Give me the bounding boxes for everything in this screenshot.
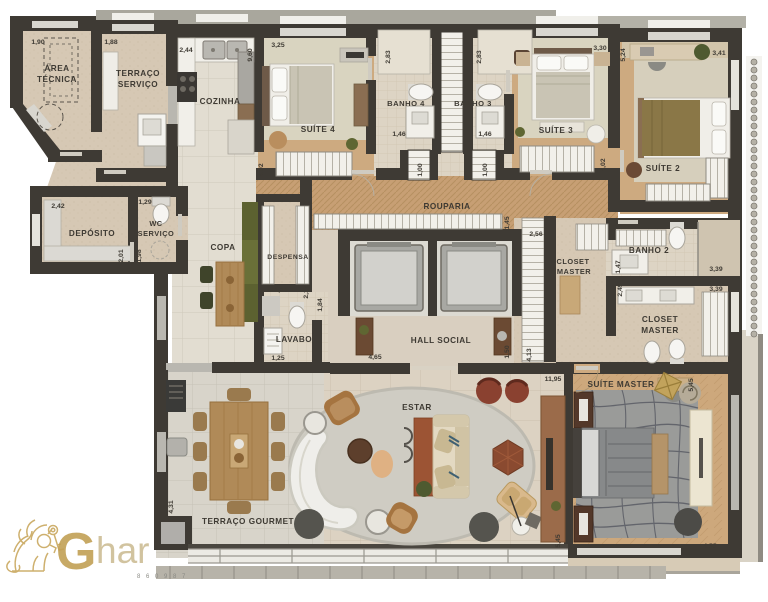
svg-text:3,39: 3,39	[709, 286, 722, 293]
svg-text:2,83: 2,83	[385, 50, 392, 63]
svg-text:1,45: 1,45	[504, 216, 511, 229]
svg-text:3,41: 3,41	[712, 50, 725, 57]
svg-text:COPA: COPA	[210, 243, 235, 252]
svg-text:CLOSET: CLOSET	[557, 257, 590, 266]
svg-text:2,42: 2,42	[51, 203, 64, 210]
svg-text:MASTER: MASTER	[641, 326, 679, 335]
svg-text:3,39: 3,39	[709, 266, 722, 273]
svg-text:ROUPARIA: ROUPARIA	[423, 202, 470, 211]
svg-text:TERRAÇO: TERRAÇO	[116, 69, 160, 78]
svg-text:1,47: 1,47	[615, 260, 622, 273]
svg-text:5,45: 5,45	[688, 378, 695, 391]
svg-text:1,46: 1,46	[392, 131, 405, 138]
svg-text:4,02: 4,02	[258, 163, 265, 176]
svg-text:1,00: 1,00	[482, 163, 489, 176]
svg-text:2,83: 2,83	[476, 50, 483, 63]
svg-text:5,24: 5,24	[620, 48, 627, 61]
svg-text:BANHO 4: BANHO 4	[387, 99, 425, 108]
svg-text:SUÍTE 4: SUÍTE 4	[301, 124, 335, 134]
svg-text:1,88: 1,88	[104, 39, 117, 46]
svg-text:SERVIÇO: SERVIÇO	[138, 229, 175, 238]
svg-text:2,44: 2,44	[179, 47, 192, 54]
svg-text:BANHO 3: BANHO 3	[454, 99, 492, 108]
svg-text:4,55: 4,55	[703, 543, 716, 550]
svg-text:5,45: 5,45	[555, 534, 562, 547]
svg-text:har: har	[96, 530, 149, 571]
svg-text:MASTER: MASTER	[557, 267, 591, 276]
svg-text:SERVIÇO: SERVIÇO	[118, 80, 158, 89]
svg-text:4,31: 4,31	[168, 500, 175, 513]
svg-text:2,17: 2,17	[303, 285, 310, 298]
svg-text:ESTAR: ESTAR	[402, 403, 432, 412]
svg-text:1,46: 1,46	[478, 131, 491, 138]
svg-text:3,30: 3,30	[593, 45, 606, 52]
svg-text:1,25: 1,25	[271, 355, 284, 362]
svg-text:11,95: 11,95	[545, 376, 562, 383]
svg-text:1,84: 1,84	[317, 298, 324, 311]
svg-text:3,25: 3,25	[271, 42, 284, 49]
svg-text:2,49: 2,49	[617, 283, 624, 296]
svg-text:TÉCNICA: TÉCNICA	[37, 74, 77, 84]
svg-text:4,65: 4,65	[368, 354, 381, 361]
svg-text:1,50: 1,50	[504, 345, 511, 358]
svg-text:SUÍTE MASTER: SUÍTE MASTER	[588, 379, 655, 389]
svg-text:DESPENSA: DESPENSA	[267, 254, 308, 261]
svg-text:CLOSET: CLOSET	[642, 315, 678, 324]
svg-text:BANHO 2: BANHO 2	[629, 246, 669, 255]
svg-text:HALL SOCIAL: HALL SOCIAL	[411, 336, 471, 345]
svg-text:TERRAÇO GOURMET: TERRAÇO GOURMET	[202, 517, 294, 526]
svg-text:8 6 0 9 8 7: 8 6 0 9 8 7	[137, 574, 187, 580]
svg-text:G: G	[56, 523, 96, 581]
svg-text:1,29: 1,29	[138, 199, 151, 206]
svg-text:1,98: 1,98	[136, 249, 143, 262]
svg-text:1,00: 1,00	[417, 163, 424, 176]
svg-text:SUÍTE 2: SUÍTE 2	[646, 163, 680, 173]
svg-text:1,29: 1,29	[274, 287, 287, 294]
svg-text:4,02: 4,02	[600, 158, 607, 171]
svg-text:LAVABO: LAVABO	[276, 335, 312, 344]
svg-text:1,90: 1,90	[31, 39, 44, 46]
svg-text:2,56: 2,56	[529, 231, 542, 238]
svg-text:9,60: 9,60	[247, 48, 254, 61]
svg-text:COZINHA: COZINHA	[200, 97, 241, 106]
svg-text:4,13: 4,13	[526, 348, 533, 361]
svg-text:2,01: 2,01	[118, 249, 125, 262]
svg-text:SUÍTE 3: SUÍTE 3	[539, 125, 573, 135]
svg-text:ÁREA: ÁREA	[44, 63, 69, 73]
svg-text:WC: WC	[149, 219, 162, 228]
svg-text:DEPÓSITO: DEPÓSITO	[69, 227, 115, 238]
